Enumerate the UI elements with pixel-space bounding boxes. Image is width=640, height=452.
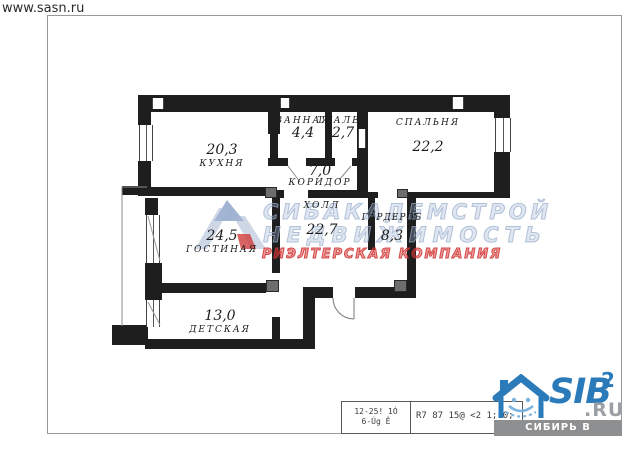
room-area: 24,5 [186,229,258,243]
wall [112,325,148,345]
window [146,215,160,263]
room-label-living: 24,5 ГОСТИНАЯ [186,229,258,255]
scanned-floorplan-page: www.sasn.ru [0,0,640,452]
stamp-cell-1: 12-25! 1Ó 6-Úg Ê [342,402,411,433]
window [139,125,153,161]
wall [122,186,138,195]
sib-logo-domain: .RU [584,399,624,421]
room-label-bedroom: СПАЛЬНЯ 22,2 [396,116,460,154]
room-label-toilet: ТУАЛЕТ 2,7 [317,114,368,140]
room-label-hall: ХОЛЛ 22,7 [304,199,341,237]
wall [145,263,162,300]
sib2-logo: SIB 2 .RU СИБИРЬ В КВАДРАТЕ [492,368,624,438]
room-name: КОРИДОР [289,178,352,188]
wall [308,190,358,198]
watermark-tagline: РИЭЛТЕРСКАЯ КОМПАНИЯ [262,247,502,262]
window [495,118,511,152]
wall [303,287,333,298]
room-label-kids: 13,0 ДЕТСКАЯ [189,309,251,335]
wall [145,339,315,349]
room-name: КУХНЯ [200,159,245,169]
door-block [394,280,407,292]
sib-logo-superscript: 2 [601,368,615,392]
room-area: 20,3 [200,143,245,157]
window [146,300,160,327]
stamp-text: 12-25! 1Ó [342,407,410,417]
room-label-wardrobe: ГАРДЕРОБ 8,3 [362,211,423,243]
wall [145,198,158,215]
wall [138,187,268,196]
wall [268,158,288,166]
sib-house-icon [492,374,550,422]
room-area: 22,2 [396,140,460,154]
source-url-text: www.sasn.ru [2,1,84,16]
wall [148,283,266,293]
room-area: 2,7 [317,126,368,140]
room-area: 7,0 [289,164,352,178]
room-name: ГОСТИНАЯ [186,245,258,255]
door-block [266,280,279,292]
room-name: ДЕТСКАЯ [189,325,251,335]
wall-vent-slot [452,97,464,109]
room-name: ХОЛЛ [304,201,341,211]
wall [494,152,510,198]
room-area: 22,7 [304,223,341,237]
door-block [397,189,408,198]
wall-vent-slot [280,98,290,108]
room-label-kitchen: 20,3 КУХНЯ [200,143,245,169]
room-label-corridor: 7,0 КОРИДОР [289,164,352,188]
stamp-text: 6-Úg Ê [342,417,410,427]
wall [494,95,510,118]
wall-vent-slot [152,98,164,109]
sib-logo-tagline: СИБИРЬ В КВАДРАТЕ [494,420,622,436]
room-area: 13,0 [189,309,251,323]
wall [272,317,280,341]
room-name: ГАРДЕРОБ [362,213,423,223]
door-block [265,187,277,198]
wall [138,95,151,125]
room-area: 8,3 [362,229,423,243]
room-name: СПАЛЬНЯ [396,118,460,128]
